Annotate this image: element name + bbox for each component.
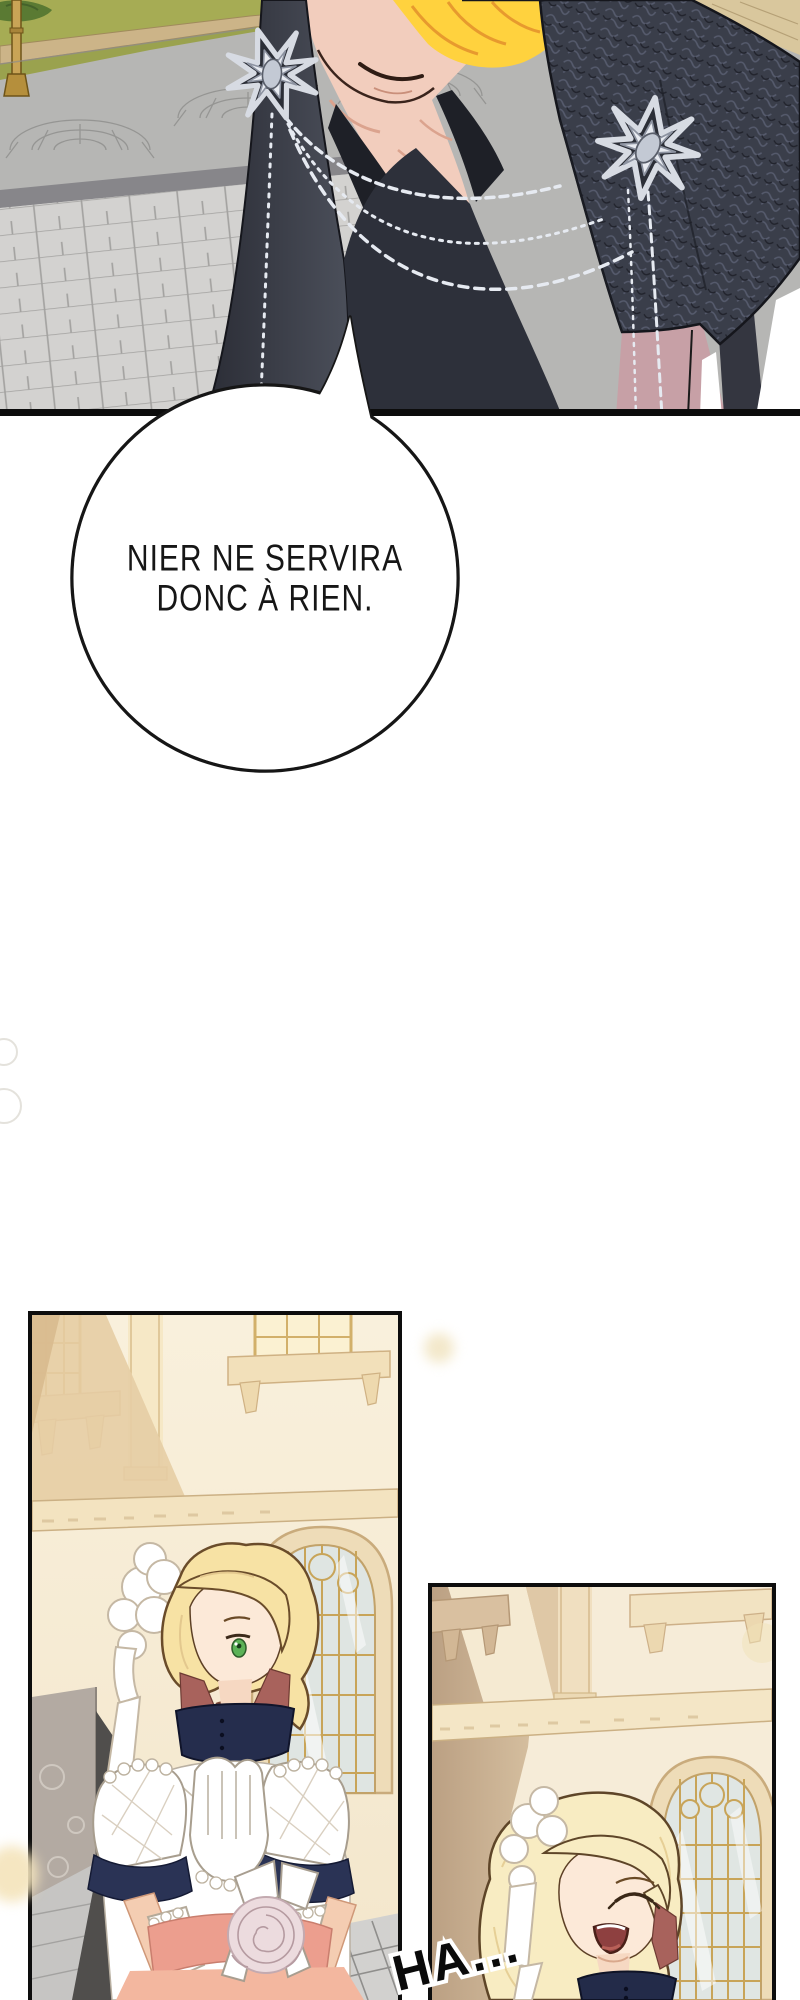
navy-collar-2: [578, 1972, 676, 2000]
speech-bubble-line-1: NIER NE SERVIRA: [65, 538, 465, 581]
navy-collar: [176, 1704, 294, 1763]
panel-bottom-left: [28, 1311, 402, 2000]
speech-bubble-line-2: DONC À RIEN.: [65, 578, 465, 621]
glow-blob: [424, 1333, 454, 1363]
bride-panel-art: [32, 1315, 398, 2000]
faint-ring-decoration: [0, 1038, 18, 1066]
faint-ring-decoration: [0, 1088, 22, 1124]
webtoon-page: NIER NE SERVIRA DONC À RIEN.: [0, 0, 800, 2000]
clasped-hands: [190, 1758, 268, 1881]
